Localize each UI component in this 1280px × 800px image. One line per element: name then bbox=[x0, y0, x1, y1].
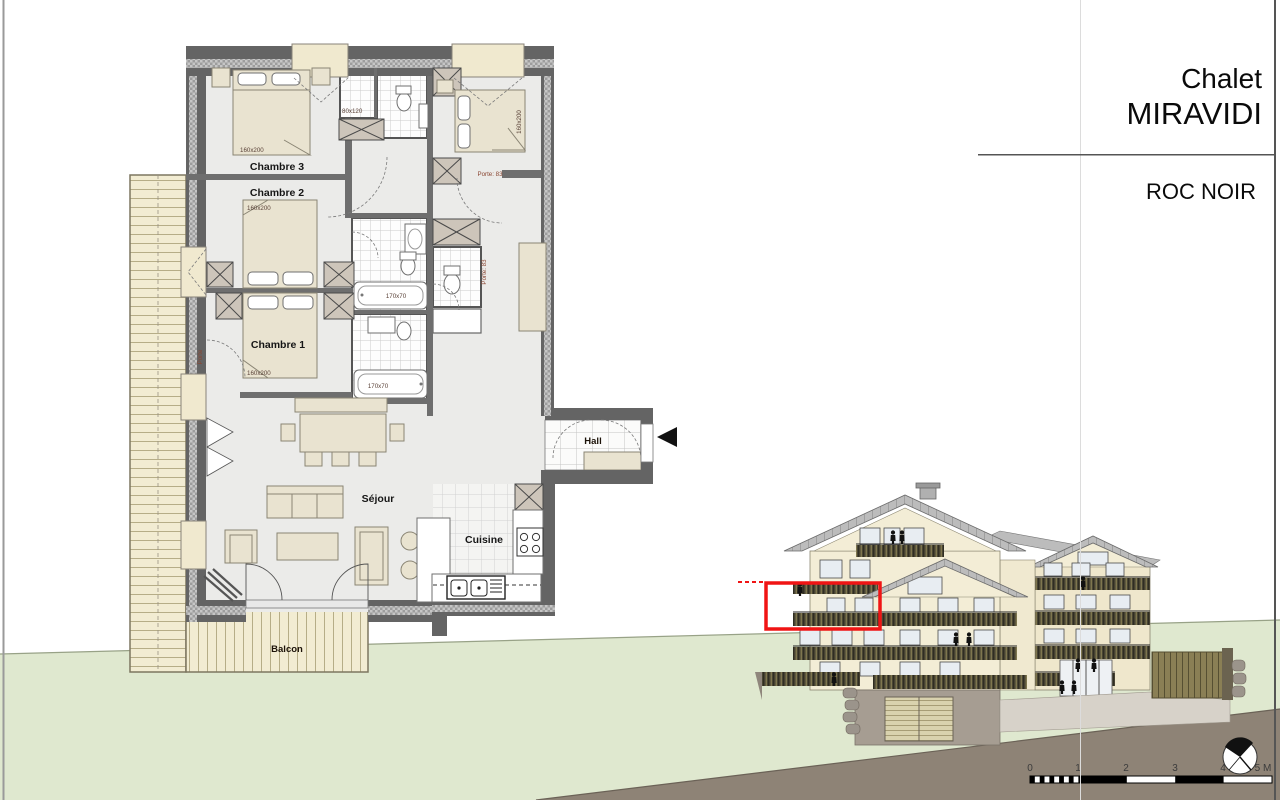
doormat bbox=[584, 452, 641, 470]
cuisine-label: Cuisine bbox=[465, 534, 503, 546]
tub-upper-dim: 170x70 bbox=[386, 293, 407, 300]
stool bbox=[401, 532, 419, 550]
coffee-table bbox=[277, 533, 338, 560]
scale-0: 0 bbox=[1027, 763, 1033, 774]
scale-3: 3 bbox=[1172, 763, 1178, 774]
sideboard bbox=[295, 398, 387, 412]
chambre1-label: Chambre 1 bbox=[251, 339, 305, 351]
nightstand bbox=[212, 68, 230, 87]
page-border-right bbox=[1274, 0, 1276, 800]
shower-dim: 80x120 bbox=[342, 108, 363, 115]
chambre3-label: Chambre 3 bbox=[250, 161, 304, 173]
porte-label: Porte bbox=[197, 349, 204, 364]
sejour-label: Séjour bbox=[362, 493, 395, 505]
right-windows bbox=[1044, 563, 1130, 643]
nightstand bbox=[437, 80, 453, 93]
wardrobe bbox=[519, 243, 546, 331]
balcony-band bbox=[793, 613, 1017, 626]
nightstand bbox=[312, 68, 330, 85]
title-name: MIRAVIDI bbox=[1127, 96, 1263, 131]
bed2-dim: 160x200 bbox=[247, 205, 271, 212]
balcon-label: Balcon bbox=[271, 644, 303, 655]
title-underline bbox=[978, 154, 1276, 156]
entrance-arrow-icon bbox=[657, 427, 677, 447]
scale-2: 2 bbox=[1123, 763, 1129, 774]
title-divider bbox=[1080, 0, 1081, 800]
ground-balcony bbox=[762, 672, 860, 686]
dining-table bbox=[300, 414, 386, 452]
balcony-door-threshold bbox=[246, 600, 368, 608]
closet bbox=[433, 309, 481, 333]
toilet-icon bbox=[397, 93, 411, 111]
bedtr-dim: 160x200 bbox=[516, 110, 523, 134]
scale-5m: 5 M bbox=[1255, 763, 1272, 774]
stove-icon bbox=[517, 528, 543, 556]
porte83-wc-label: Porte: 83 bbox=[481, 259, 488, 285]
chambre2-label: Chambre 2 bbox=[250, 187, 304, 199]
porte83-label: Porte: 83 bbox=[477, 171, 503, 178]
tub-lower-dim: 170x70 bbox=[368, 383, 389, 390]
ground-balcony bbox=[873, 675, 1027, 689]
title-building: ROC NOIR bbox=[1146, 179, 1256, 204]
title-project: Chalet bbox=[1181, 63, 1262, 94]
gate-post bbox=[1222, 648, 1233, 700]
architectural-drawing: Chambre 3 Chambre 2 Chambre 1 Séjour Cui… bbox=[0, 0, 1280, 800]
washbasin-icon bbox=[419, 104, 428, 128]
drawing-sheet: Chambre 3 Chambre 2 Chambre 1 Séjour Cui… bbox=[0, 0, 1280, 800]
hall-label: Hall bbox=[584, 436, 601, 447]
chambre2-furniture bbox=[243, 200, 317, 288]
washbasin-icon bbox=[368, 317, 395, 333]
floor-plan: Chambre 3 Chambre 2 Chambre 1 Séjour Cui… bbox=[130, 44, 677, 672]
balcony-left-strip bbox=[130, 175, 186, 672]
bed1-dim: 160x200 bbox=[247, 370, 271, 377]
attic-balcony bbox=[856, 545, 944, 557]
page-border-left bbox=[3, 0, 5, 800]
wood-gate bbox=[1152, 652, 1224, 698]
toilet-icon bbox=[444, 274, 460, 294]
entry-door bbox=[641, 424, 653, 462]
balcony-band bbox=[793, 647, 1017, 660]
chambre1-furniture bbox=[243, 293, 317, 378]
bed3-dim: 160x200 bbox=[240, 147, 264, 154]
stool bbox=[401, 561, 419, 579]
sofa bbox=[267, 486, 343, 518]
north-compass-icon bbox=[1223, 737, 1257, 774]
toilet-icon bbox=[397, 322, 411, 340]
